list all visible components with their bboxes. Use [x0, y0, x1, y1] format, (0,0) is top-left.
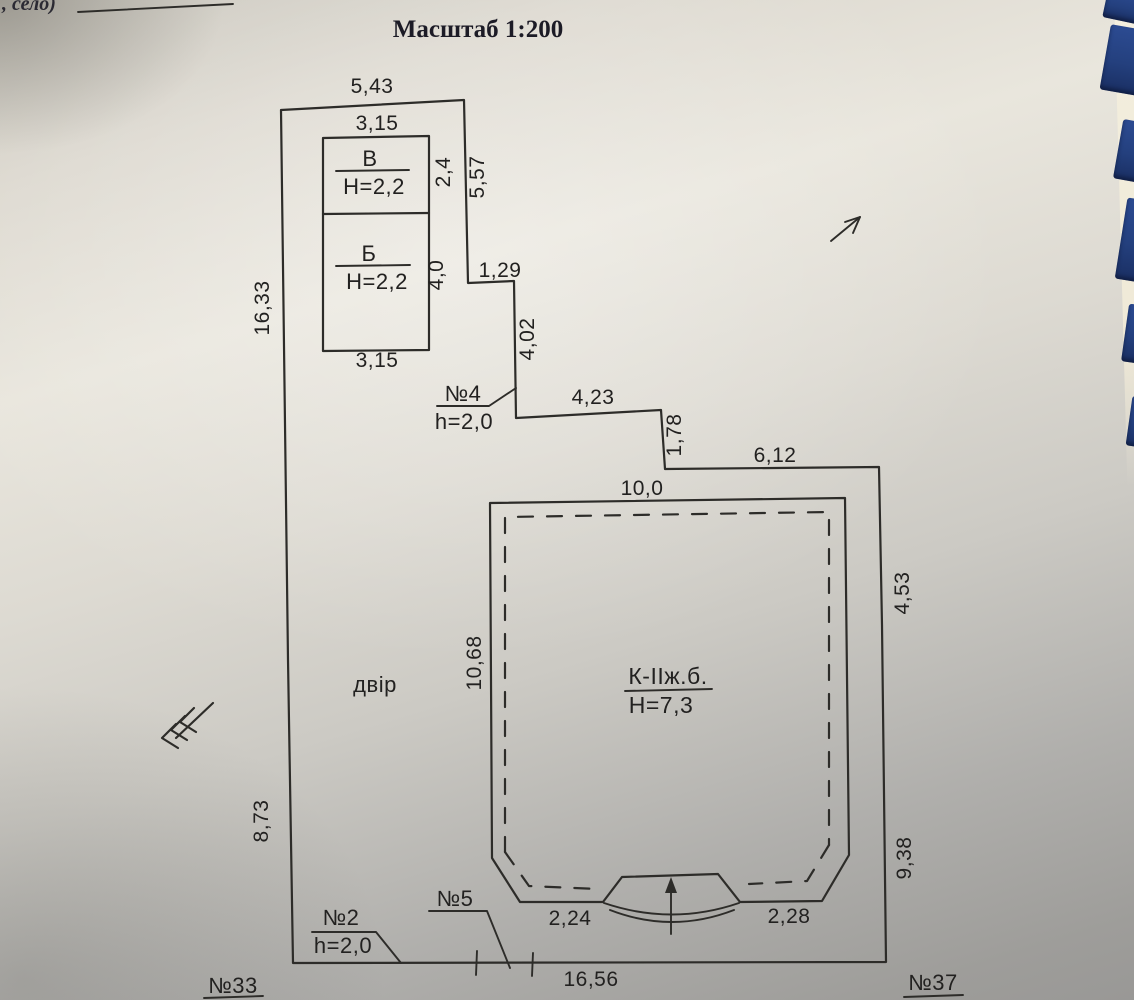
gate2-label: №2 [323, 905, 360, 930]
neighbor-right: №37 [908, 970, 958, 995]
dim-step-2: 4,02 [516, 318, 539, 361]
dim-right-mid: 4,53 [891, 572, 914, 615]
dim-step-5: 6,12 [754, 444, 797, 467]
neighbor-right-underline [904, 995, 963, 997]
dim-right-lower: 9,38 [893, 837, 916, 880]
entry-arrow-icon [665, 877, 677, 934]
page-title: Масштаб 1:200 [393, 16, 563, 43]
gate5-label: №5 [437, 886, 474, 911]
main-house-type: К-ІІж.б. [628, 663, 707, 689]
main-house-width: 10,0 [621, 477, 664, 500]
document-photo: , село) Масштаб 1:200 [0, 0, 1134, 1000]
section-b-height: H=2,2 [346, 269, 408, 294]
dim-bottom: 16,56 [563, 968, 618, 991]
dim-step-1: 1,29 [479, 259, 522, 282]
section-v-name: В [362, 146, 377, 171]
dim-top: 5,43 [351, 75, 394, 98]
dim-left-upper: 16,33 [251, 280, 274, 335]
plot-boundary [281, 100, 886, 963]
gate4-label: №4 [445, 381, 482, 406]
dim-step-3: 4,23 [572, 386, 615, 409]
gate4-height: h=2,0 [435, 409, 493, 434]
site-plan-drawing: , село) Масштаб 1:200 [0, 0, 1134, 1000]
section-v-height: H=2,2 [343, 174, 405, 199]
porch-right-dim: 2,28 [768, 905, 811, 928]
gate2-height: h=2,0 [314, 933, 372, 958]
dim-step-4: 1,78 [663, 414, 686, 457]
main-house-underline [625, 689, 712, 691]
dim-left-lower: 8,73 [250, 800, 273, 843]
main-house-height: H=7,3 [629, 692, 694, 718]
outbuilding-width-bottom: 3,15 [356, 349, 399, 372]
corner-note: , село) [1, 0, 56, 15]
yard-label: двір [353, 672, 397, 697]
dim-right-upper-vert: 5,57 [466, 156, 489, 199]
corner-note-underline [78, 4, 233, 12]
section-b-depth: 4,0 [425, 260, 448, 291]
north-arrow-icon [831, 217, 860, 241]
main-house-depth: 10,68 [463, 635, 486, 690]
section-v-depth: 2,4 [432, 157, 455, 188]
section-b-name: Б [362, 241, 377, 266]
porch-left-dim: 2,24 [549, 907, 592, 930]
outbuilding-width-top: 3,15 [356, 112, 399, 135]
gate5-leader [429, 911, 510, 968]
neighbor-left: №33 [208, 973, 258, 998]
entrance-symbol-icon [162, 703, 213, 748]
